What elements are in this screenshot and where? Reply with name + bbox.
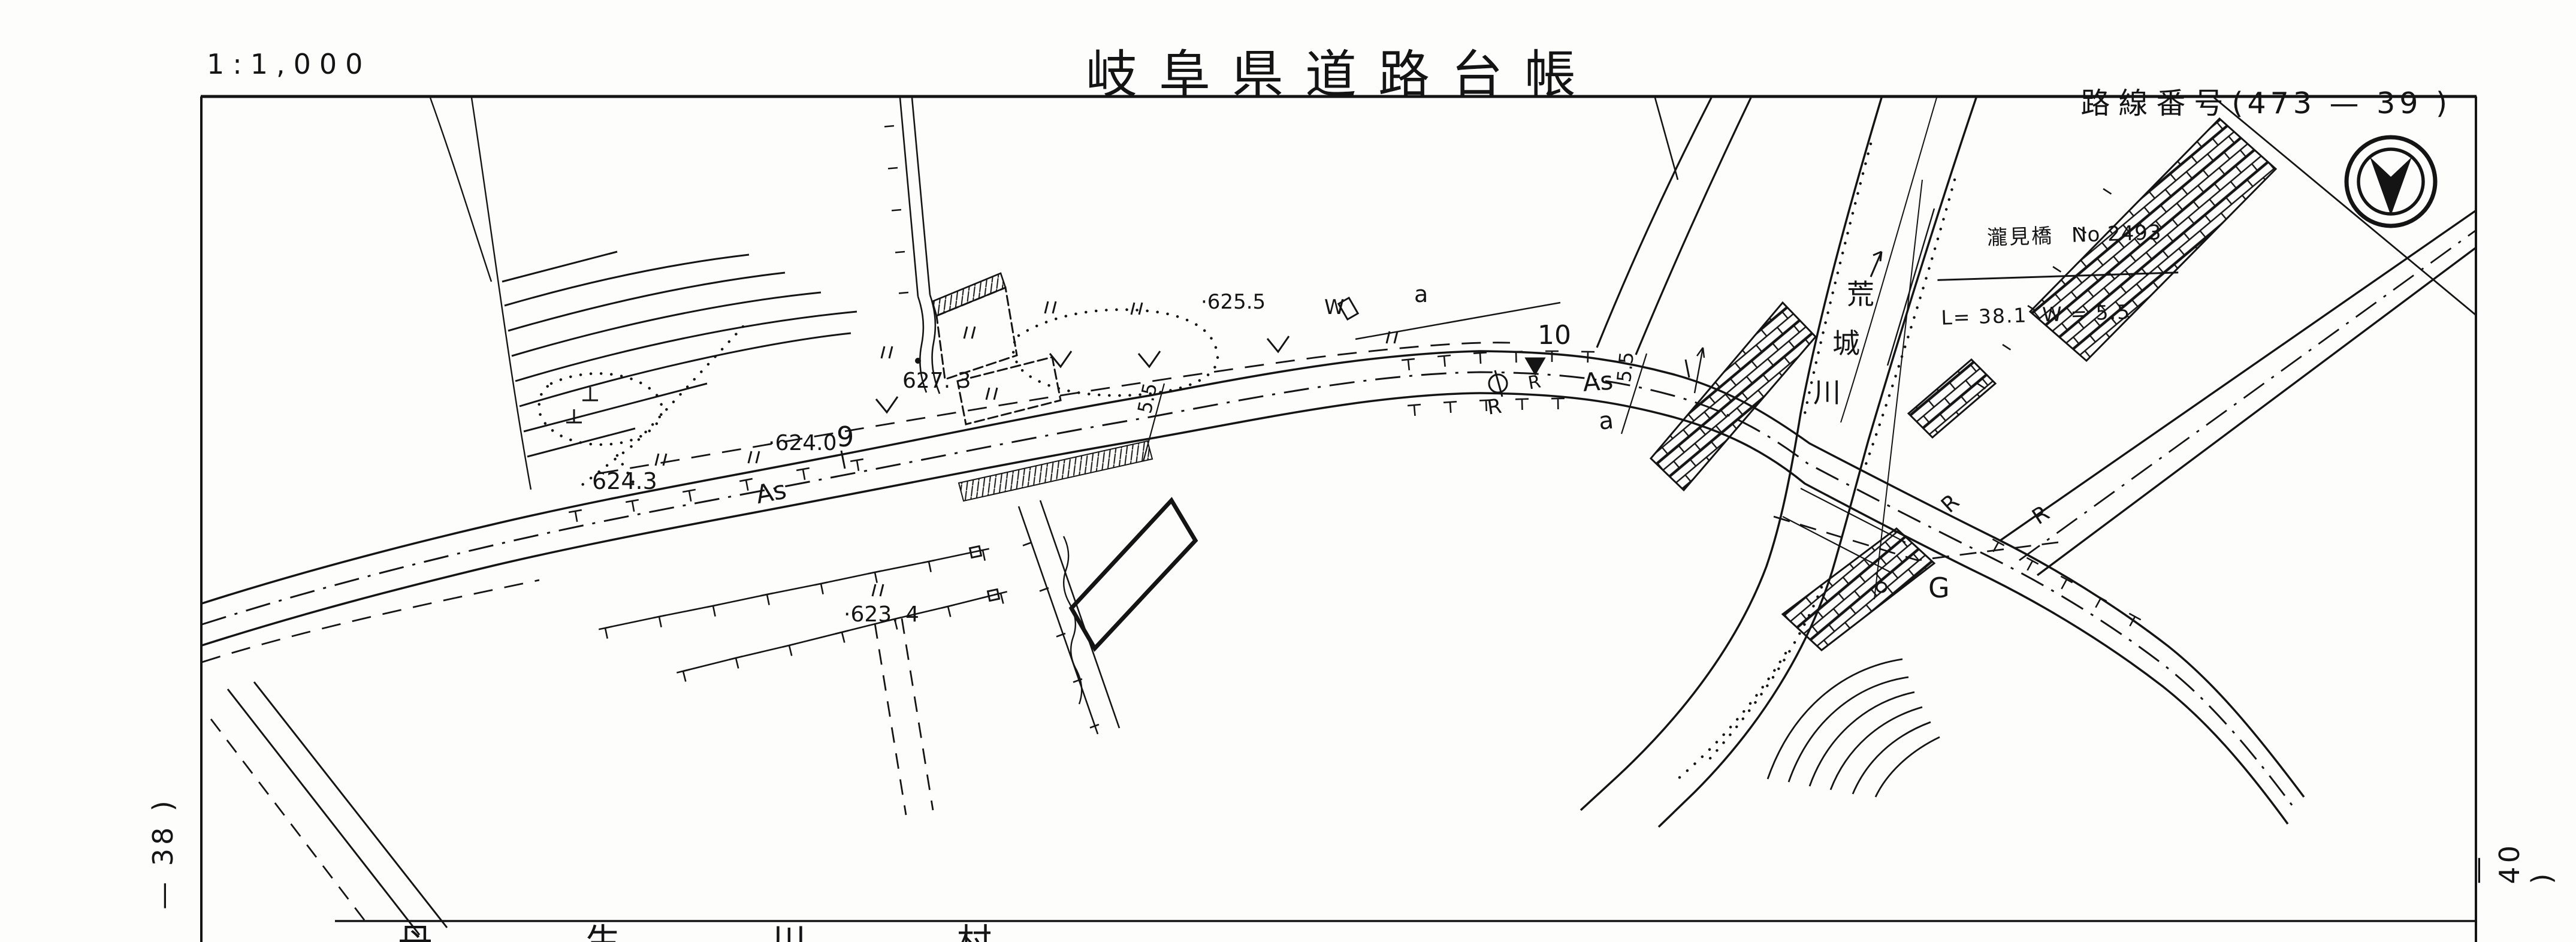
road-ledger-sheet: 1:1,000 岐阜県道路台帳 路線番号(473 — 39 ) — 38 ) —… — [0, 0, 2576, 942]
route-number-value: (473 — 39 ) — [2231, 86, 2451, 120]
map-label: R — [1486, 396, 1503, 418]
map-label: ·625.5 — [1201, 292, 1266, 312]
bridge-number: No 2493 — [2071, 221, 2162, 247]
map-label: 、 — [1097, 928, 1131, 942]
map-label: 10 — [1538, 322, 1571, 349]
map-label: ·624.0 — [768, 433, 837, 454]
bridge-dimensions: L= 38.1 W = 5.5 — [1938, 296, 2181, 330]
map-label: 624.3 — [592, 470, 657, 493]
map-label: 村 — [957, 924, 992, 942]
map-label: a — [1597, 408, 1615, 433]
map-label: As — [754, 477, 789, 508]
bridge-annotation: 瀧見橋No 2493 L= 38.1 W = 5.5 — [1934, 168, 2181, 352]
adjacent-sheet-right: — 40 ) — [2461, 818, 2558, 884]
map-label: 丹 — [398, 924, 433, 942]
map-label: ·623. 4 — [844, 604, 919, 626]
map-label: 9 — [836, 423, 854, 451]
map-scale: 1:1,000 — [207, 48, 371, 80]
map-label: a — [1414, 283, 1428, 306]
map-label: As — [1582, 368, 1614, 395]
map-label: 川 — [771, 924, 806, 942]
map-label: W — [1324, 297, 1345, 318]
map-label: 川 — [1813, 379, 1841, 406]
page-title: 岐阜県道路台帳 — [1086, 32, 1597, 107]
map-label: 城 — [1832, 330, 1860, 357]
route-number-label: 路線番号 — [2080, 86, 2231, 120]
map-label: 627. 3 — [902, 370, 971, 392]
route-number: 路線番号(473 — 39 ) — [2043, 46, 2451, 156]
map-label: 生 — [585, 924, 620, 942]
map-label: G — [1928, 574, 1950, 602]
adjacent-sheet-left: — 38 ) — [147, 797, 179, 910]
map-label: 荒 — [1847, 280, 1874, 308]
bridge-name: 瀧見橋 — [1987, 224, 2054, 250]
map-label: 5.5 — [1135, 381, 1160, 415]
map-label: 5.5 — [1614, 351, 1636, 383]
